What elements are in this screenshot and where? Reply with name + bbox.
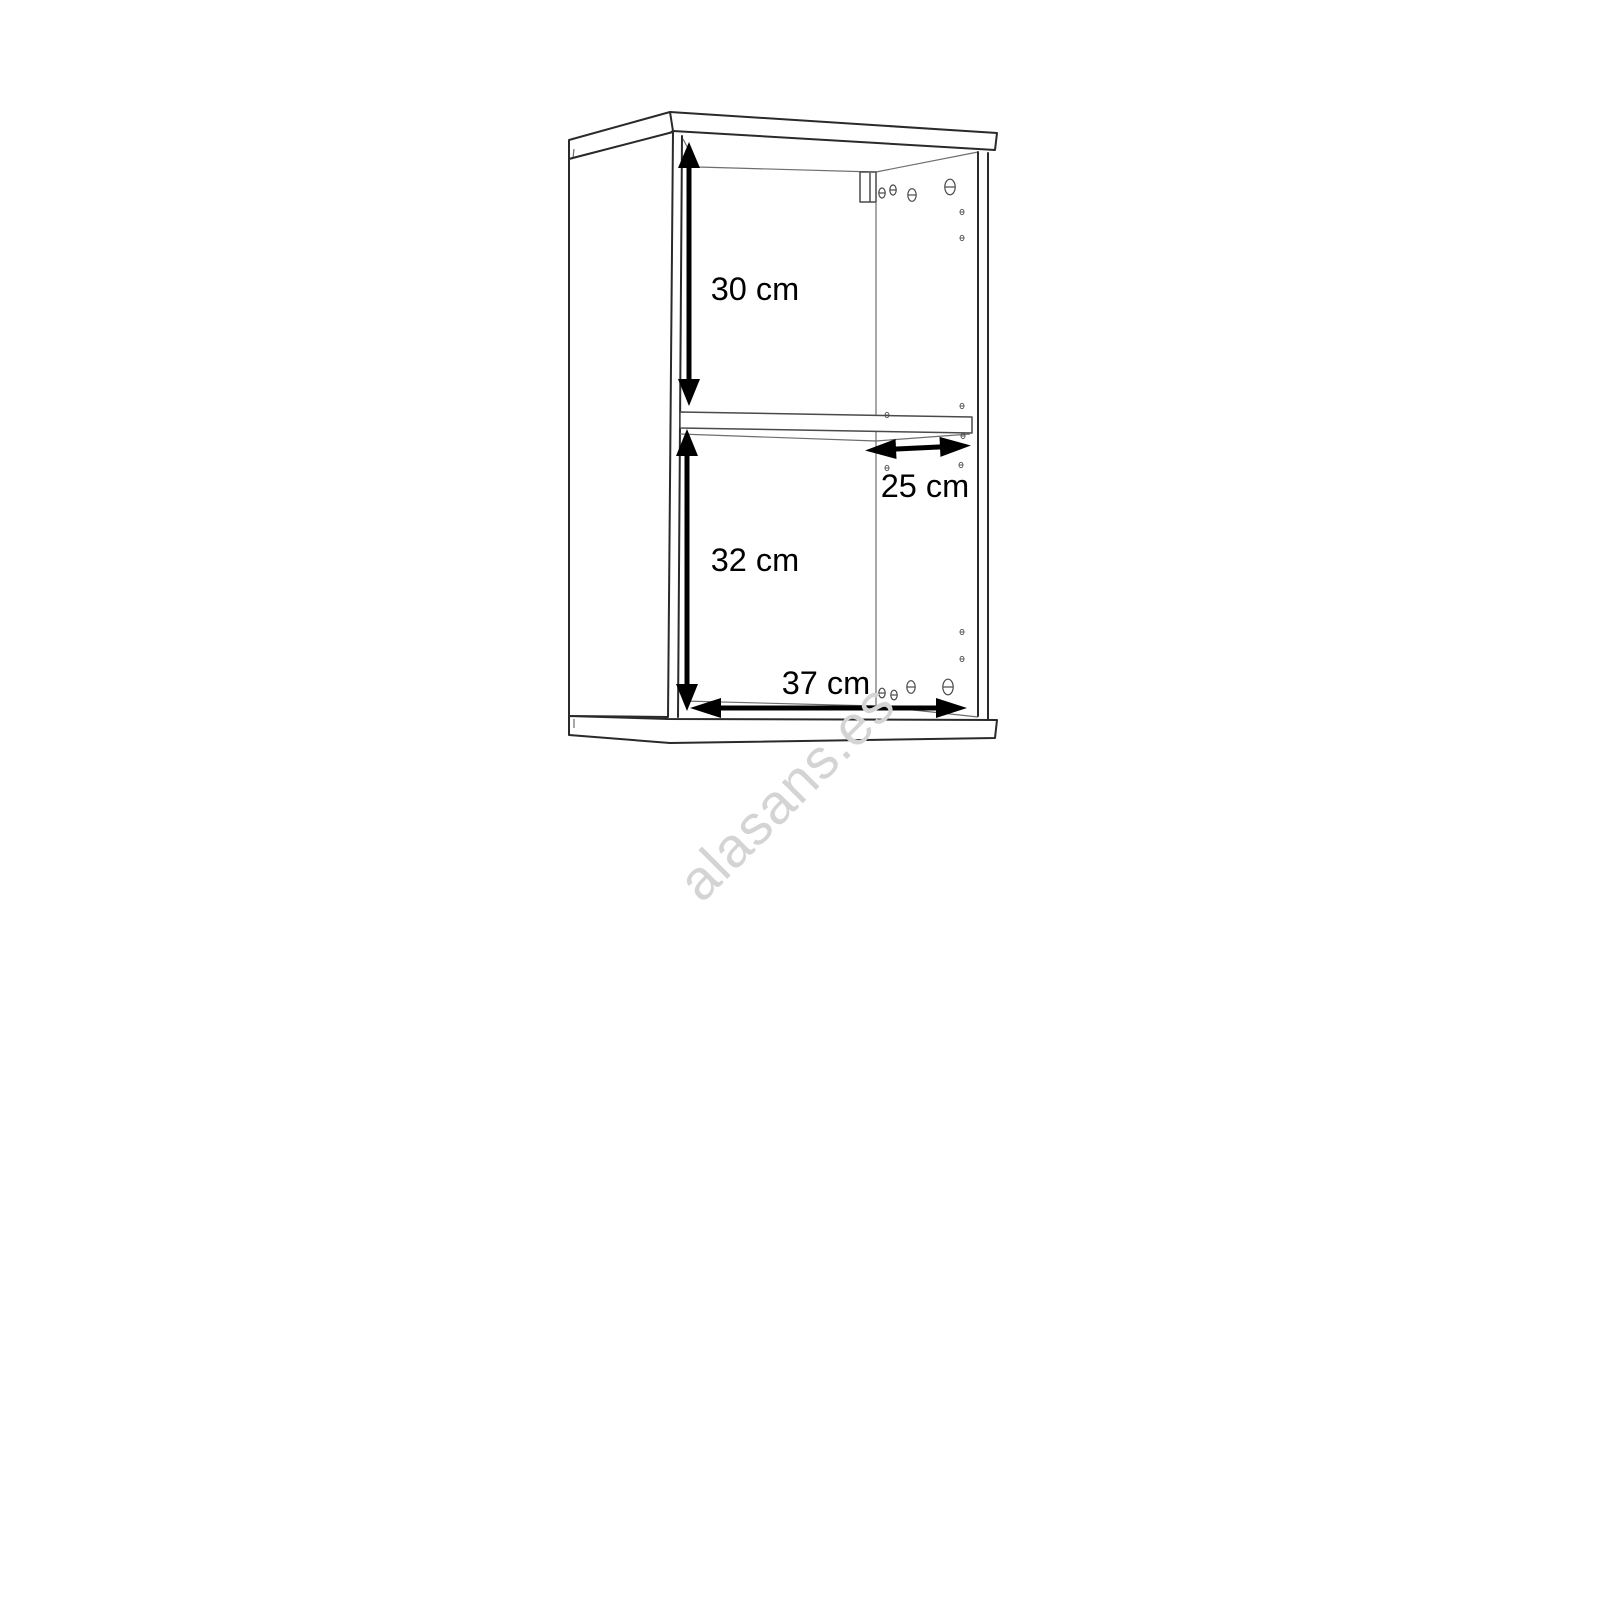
dimension-label-32cm: 32 cm	[711, 542, 800, 578]
cabinet-drawing: 30 cm 32 cm 25 cm 37 cm alasans.es	[0, 0, 1600, 1600]
mounting-holes-bottom	[879, 679, 953, 700]
wall-mount-bracket	[860, 172, 876, 202]
shelf	[680, 412, 972, 441]
dimension-shelf-depth: 25 cm	[865, 435, 972, 504]
mounting-holes-top	[879, 179, 955, 201]
bottom-panel	[569, 716, 997, 743]
cabinet-structure	[569, 112, 997, 743]
right-side-panel	[978, 152, 988, 719]
dimension-label-30cm: 30 cm	[711, 271, 800, 307]
shelf-pin-holes-front	[959, 209, 966, 661]
dimension-top-compartment-height: 30 cm	[678, 142, 799, 406]
dimension-label-25cm: 25 cm	[881, 468, 970, 504]
left-side-panel	[569, 132, 682, 717]
dimension-drawing-canvas: 30 cm 32 cm 25 cm 37 cm alasans.es	[0, 0, 1600, 1600]
